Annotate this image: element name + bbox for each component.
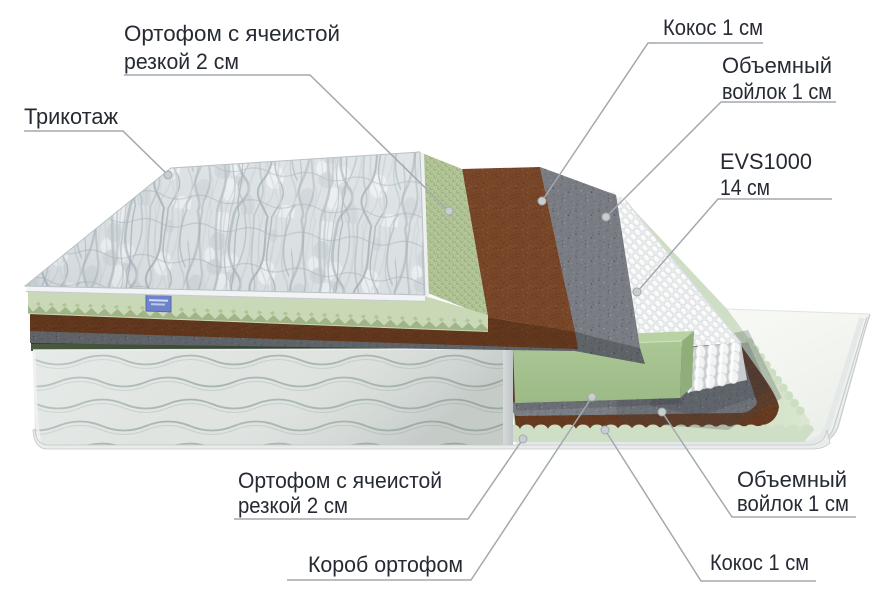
svg-text:Ортофом с ячеистой: Ортофом с ячеистой <box>124 21 340 46</box>
svg-text:14 см: 14 см <box>720 175 770 200</box>
svg-text:резкой 2 см: резкой 2 см <box>124 49 239 74</box>
svg-text:Трикотаж: Трикотаж <box>24 104 119 129</box>
svg-text:Кокос 1 см: Кокос 1 см <box>663 15 763 40</box>
svg-text:Объемный: Объемный <box>737 467 847 492</box>
svg-text:EVS1000: EVS1000 <box>720 149 812 174</box>
svg-text:Ортофом с ячеистой: Ортофом с ячеистой <box>238 468 442 493</box>
svg-text:войлок 1 см: войлок 1 см <box>722 79 832 104</box>
svg-text:Короб ортофом: Короб ортофом <box>308 552 463 577</box>
svg-text:войлок 1 см: войлок 1 см <box>737 491 849 516</box>
svg-text:резкой 2 см: резкой 2 см <box>238 493 348 518</box>
svg-text:Кокос 1 см: Кокос 1 см <box>710 550 809 575</box>
svg-text:Объемный: Объемный <box>722 53 832 78</box>
